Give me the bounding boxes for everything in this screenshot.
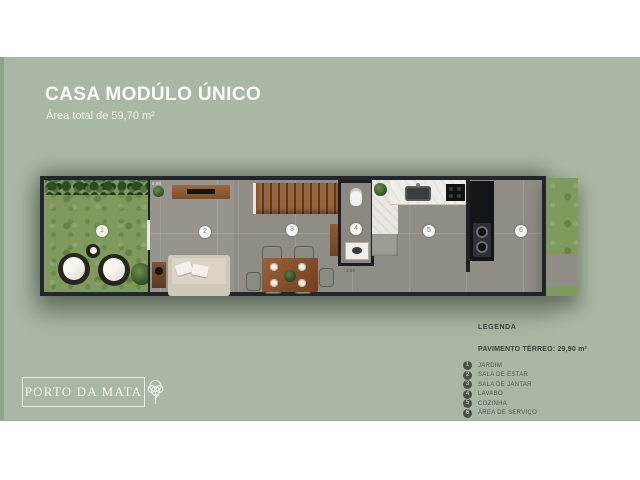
dimension-label: 1,00 <box>346 268 355 273</box>
legend-bullet: 4 <box>463 390 472 399</box>
legend-item-sala-de-jantar: 3 SALA DE JANTAR <box>463 380 613 390</box>
kitchen-sink <box>405 186 431 201</box>
room-marker-1: 1 <box>96 225 108 237</box>
floorplan: 1 2 3 4 5 6 5,80 1,00 <box>40 176 546 296</box>
plate <box>298 279 306 287</box>
room-jardim <box>45 180 150 292</box>
staircase <box>253 183 339 214</box>
tv <box>187 189 215 194</box>
legend-label: SALA DE ESTAR <box>478 372 528 378</box>
dimension-label: 5,80 <box>152 181 161 186</box>
slide-left-edge <box>0 57 4 420</box>
dining-chair <box>246 272 261 291</box>
dining-table <box>262 258 318 292</box>
tree-icon <box>147 378 164 405</box>
cabinet <box>330 224 338 256</box>
round-chair <box>58 253 90 285</box>
brand-name: PORTO DA MATA <box>25 384 143 400</box>
kitchen-lower-counter <box>372 234 398 256</box>
sofa <box>168 255 230 296</box>
sink-basin <box>352 247 362 254</box>
sideboard <box>172 185 230 199</box>
legend-bullet: 5 <box>463 399 472 408</box>
laundry-column <box>470 181 494 261</box>
legend-bullet: 3 <box>463 380 472 389</box>
potted-plant <box>374 183 387 196</box>
legend-label: SALA DE JANTAR <box>478 382 532 388</box>
dryer-door <box>476 241 488 253</box>
room-marker-6: 6 <box>515 225 527 237</box>
burner <box>449 187 453 191</box>
garden-side-table <box>86 244 100 258</box>
room-marker-4: 4 <box>350 223 362 235</box>
brand-logo-box: PORTO DA MATA <box>22 377 145 407</box>
legend-item-cozinha: 5 COZINHA <box>463 399 613 409</box>
legend-item-lavabo: 4 LAVABO <box>463 390 613 400</box>
legend-list: 1 JARDIM 2 SALA DE ESTAR 3 SALA DE JANTA… <box>463 361 613 418</box>
room-sala-de-jantar <box>234 180 338 292</box>
page-subtitle: Área total de 59,70 m² <box>46 110 155 122</box>
room-sala-de-estar <box>150 180 234 292</box>
burner <box>449 194 453 198</box>
burner <box>457 194 461 198</box>
potted-plant <box>153 186 164 197</box>
kitchen-counter <box>390 180 466 205</box>
chair-cushion <box>103 258 125 281</box>
legend-label: ÁREA DE SERVIÇO <box>478 410 537 416</box>
hedge-plants <box>45 180 150 195</box>
washer-door <box>476 226 488 238</box>
faucet <box>416 183 420 187</box>
legend-item-jardim: 1 JARDIM <box>463 361 613 371</box>
page-title: CASA MODÚLO ÚNICO <box>45 84 261 106</box>
room-marker-5: 5 <box>423 225 435 237</box>
legend-label: LAVABO <box>478 391 503 397</box>
legend-item-sala-de-estar: 2 SALA DE ESTAR <box>463 371 613 381</box>
plate <box>270 279 278 287</box>
chair-cushion <box>63 257 85 280</box>
toilet <box>350 188 362 206</box>
legend-label: JARDIM <box>478 363 502 369</box>
legend-item-area-de-servico: 6 ÁREA DE SERVIÇO <box>463 409 613 419</box>
side-path <box>546 254 578 286</box>
lamp <box>155 267 163 275</box>
legend-bullet: 6 <box>463 409 472 418</box>
round-chair <box>98 254 130 286</box>
cooktop <box>446 184 465 201</box>
washer-stack <box>473 223 491 257</box>
poster-canvas: CASA MODÚLO ÚNICO Área total de 59,70 m² <box>0 0 640 480</box>
plate <box>270 263 278 271</box>
burner <box>457 187 461 191</box>
legend-heading: LEGENDA <box>478 324 516 331</box>
sofa-side-table <box>152 262 166 288</box>
side-garden-strip <box>546 178 578 296</box>
table-top <box>90 247 97 254</box>
legend-bullet: 1 <box>463 361 472 370</box>
vanity-sink <box>345 242 369 260</box>
room-marker-3: 3 <box>286 224 298 236</box>
legend-label: COZINHA <box>478 401 507 407</box>
table-plant <box>284 270 296 282</box>
dining-chair <box>319 268 334 287</box>
room-marker-2: 2 <box>199 226 211 238</box>
legend-floor-title: PAVIMENTO TÉRREO: 29,90 m² <box>478 346 587 353</box>
legend-bullet: 2 <box>463 371 472 380</box>
plate <box>298 263 306 271</box>
